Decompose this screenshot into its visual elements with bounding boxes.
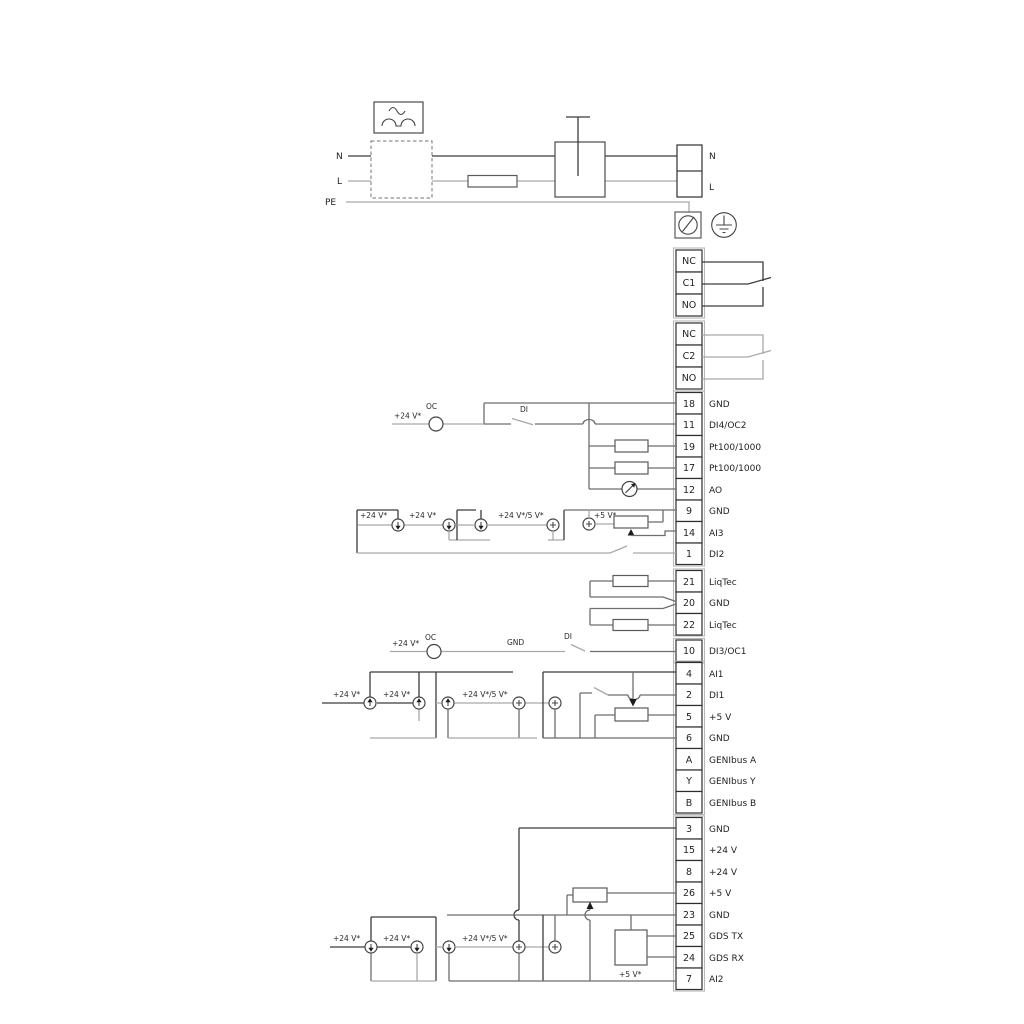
terminal-number: 26 — [683, 888, 695, 899]
current-source-down-icon — [365, 941, 377, 953]
relay2-wires — [702, 335, 763, 379]
terminal-label: AI1 — [709, 670, 724, 680]
open-collector-icon — [429, 417, 443, 431]
relay-1: NC C1 NO — [674, 248, 772, 318]
relay2-nc: NC — [682, 329, 696, 340]
signal-source-plus-icon — [547, 519, 559, 531]
v24-label: +24 V* — [383, 690, 410, 699]
terminal-label: GND — [709, 734, 730, 744]
terminal-number: 15 — [683, 845, 695, 856]
v24-label: +24 V* — [383, 934, 410, 943]
sensor-row-ai3: +24 V* +24 V* +24 V*/5 V* +5 V* — [357, 510, 676, 553]
dashed-component-box — [371, 141, 432, 198]
signal-source-plus-icon — [513, 697, 525, 709]
terminal-number: 5 — [686, 712, 692, 723]
pot-wiper-arrow — [587, 902, 594, 909]
potentiometer — [573, 888, 607, 902]
terminal-label: GDS TX — [709, 932, 743, 942]
terminal-label: +5 V — [709, 713, 732, 723]
terminal-number: 22 — [683, 620, 695, 631]
pot-left — [595, 715, 615, 738]
di3-row: 10 DI3/OC1 +24 V* OC GND DI — [390, 632, 746, 663]
bracket — [548, 531, 564, 540]
terminal-label: AI3 — [709, 529, 724, 539]
wire-pe — [346, 202, 689, 212]
current-source-up-icon — [413, 697, 425, 709]
terminal-label: +24 V — [709, 868, 738, 878]
terminal-label: GENIbus Y — [709, 777, 756, 787]
v5-label: +5 V* — [619, 970, 642, 979]
signal-source-plus-icon — [549, 941, 561, 953]
current-source-down-icon — [443, 941, 455, 953]
io-group-3: 3 GND 15 +24 V 8 +24 V 26 +5 V 23 GND 25… — [674, 816, 744, 991]
liqtec-sensor-resistor-2 — [613, 620, 648, 631]
di1-switch — [594, 688, 608, 696]
label-n-in: N — [336, 152, 343, 162]
terminal-number: 14 — [683, 528, 695, 539]
terminal-label: DI2 — [709, 550, 724, 560]
power-section: N L PE N L — [325, 102, 736, 238]
oc-label: OC — [426, 402, 437, 411]
terminal-label: GDS RX — [709, 954, 744, 964]
label-l-out: L — [709, 183, 714, 193]
terminal-number: 18 — [683, 399, 695, 410]
relay1-wires — [702, 262, 763, 306]
v24-label: +24 V* — [392, 639, 419, 648]
terminal-number: 12 — [683, 485, 695, 496]
v5-label: +5 V* — [594, 511, 617, 520]
terminal-number: 10 — [683, 646, 695, 657]
terminal-label: GND — [709, 599, 730, 609]
current-source-up-icon — [364, 697, 376, 709]
wiring-diagram: N L PE N L NC — [0, 0, 1024, 1024]
terminal-number: 8 — [686, 867, 692, 878]
di4-switch — [512, 419, 533, 425]
label-n-out: N — [709, 152, 716, 162]
pe-screw-terminal-icon — [675, 212, 701, 238]
terminal-label: +24 V — [709, 846, 738, 856]
v24-label: +24 V* — [394, 412, 421, 421]
fuse — [468, 176, 517, 188]
potentiometer — [614, 516, 648, 528]
relay2-c2: C2 — [683, 351, 696, 362]
sensor-row-ai2: +24 V* +24 V* +24 V*/5 V* +5 V* — [330, 828, 676, 981]
current-source-down-icon — [392, 519, 404, 531]
v24-5-label: +24 V*/5 V* — [462, 690, 508, 699]
ac-supply-box — [374, 102, 423, 133]
liqtec-sensor-resistor-1 — [613, 576, 648, 587]
open-collector-icon — [427, 645, 441, 659]
current-source-down-icon — [411, 941, 423, 953]
pt100-resistor-2 — [615, 462, 648, 474]
relay1-nc: NC — [682, 256, 696, 267]
potentiometer — [615, 708, 648, 721]
wire-14 — [631, 531, 676, 536]
terminal-number: 25 — [683, 931, 695, 942]
terminal-label: LiqTec — [709, 621, 737, 631]
pot-wiper-arrow — [628, 529, 635, 536]
pot-left — [567, 895, 573, 915]
liqtec-group: 21 LiqTec 20 GND 22 LiqTec — [590, 569, 737, 636]
terminal-label: GND — [709, 825, 730, 835]
terminal-label: GENIbus B — [709, 799, 756, 809]
terminal-label: AI2 — [709, 975, 724, 985]
terminal-number: 3 — [686, 824, 692, 835]
relay1-contact — [748, 278, 771, 285]
v24-5-label: +24 V*/5 V* — [498, 511, 544, 520]
terminal-label: Pt100/1000 — [709, 443, 761, 453]
analog-output-meter-icon — [622, 482, 637, 497]
v24-label: +24 V* — [409, 511, 436, 520]
bracket — [449, 531, 490, 540]
terminal-number: 11 — [683, 420, 695, 431]
terminal-number: 20 — [683, 598, 695, 609]
wire-2-jump — [628, 695, 640, 700]
wire-18 — [484, 403, 676, 424]
terminal-number: 21 — [683, 577, 695, 588]
di1-bracket — [580, 693, 592, 738]
terminal-number: 1 — [686, 549, 692, 560]
pt100-resistor-1 — [615, 440, 648, 452]
current-source-up-icon — [442, 697, 454, 709]
v24-5-label: +24 V*/5 V* — [462, 934, 508, 943]
v24-label: +24 V* — [333, 690, 360, 699]
signal-source-plus-icon — [513, 941, 525, 953]
relay1-no: NO — [682, 300, 697, 311]
terminal-number: 4 — [686, 669, 692, 680]
label-l-in: L — [337, 177, 342, 187]
di2-switch — [610, 546, 627, 553]
terminal-number: 24 — [683, 953, 695, 964]
label-pe: PE — [325, 198, 336, 208]
di-label: DI — [564, 632, 572, 641]
relay1-c1: C1 — [683, 278, 696, 289]
sensor-row-ai1: +24 V* +24 V* +24 V*/5 V* — [322, 672, 676, 738]
terminal-label: GND — [709, 400, 730, 410]
terminal-label: AO — [709, 486, 722, 496]
terminal-number: 23 — [683, 910, 695, 921]
terminal-label: GND — [709, 507, 730, 517]
current-source-down-icon — [443, 519, 455, 531]
current-source-down-icon — [475, 519, 487, 531]
stems-down — [371, 953, 519, 981]
terminal-label: DI4/OC2 — [709, 421, 746, 431]
terminal-number: Y — [685, 776, 692, 787]
signal-source-plus-icon — [549, 697, 561, 709]
pot-to-gnd — [648, 510, 663, 522]
gds-sensor-box — [615, 930, 647, 965]
stems-down — [448, 709, 555, 738]
io-group-2: 4 AI1 2 DI1 5 +5 V 6 GND A GENIbus A Y G… — [674, 661, 758, 815]
relay2-no: NO — [682, 373, 697, 384]
main-switch-box — [555, 142, 605, 197]
gnd-label: GND — [507, 638, 524, 647]
terminal-number: 7 — [686, 974, 692, 985]
di-label: DI — [520, 405, 528, 414]
terminal-label: Pt100/1000 — [709, 464, 761, 474]
wiper-arrow — [629, 699, 637, 707]
terminal-label: +5 V — [709, 889, 732, 899]
terminal-number: 17 — [683, 463, 695, 474]
terminal-number: A — [686, 755, 693, 766]
terminal-number: 2 — [686, 690, 692, 701]
terminal-number: 6 — [686, 733, 692, 744]
terminal-label: GND — [709, 911, 730, 921]
signal-source-plus-icon — [583, 518, 595, 530]
oc-label: OC — [425, 633, 436, 642]
terminal-label: DI3/OC1 — [709, 647, 746, 657]
v24-label: +24 V* — [333, 934, 360, 943]
io-group-1: 18 GND 11 DI4/OC2 19 Pt100/1000 17 Pt100… — [392, 391, 761, 566]
v24-label: +24 V* — [360, 511, 387, 520]
relay2-contact — [748, 351, 771, 358]
terminal-number: B — [686, 798, 693, 809]
relay-2: NC C2 NO — [674, 321, 772, 391]
terminal-label: LiqTec — [709, 578, 737, 588]
earth-icon — [712, 213, 737, 238]
terminal-label: GENIbus A — [709, 756, 757, 766]
terminal-label: DI1 — [709, 691, 724, 701]
terminal-number: 19 — [683, 442, 695, 453]
terminal-number: 9 — [686, 506, 692, 517]
di3-switch — [571, 645, 585, 652]
